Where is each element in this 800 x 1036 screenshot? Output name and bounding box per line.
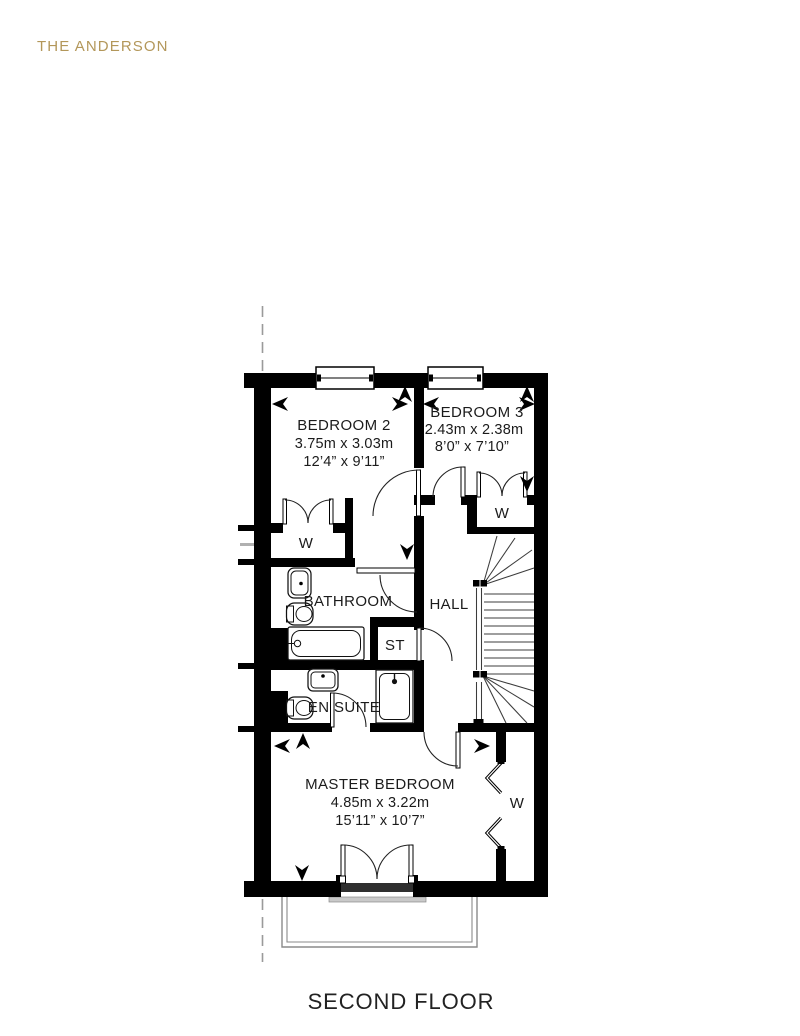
door-store: [417, 628, 452, 661]
wardrobe-doors-bedroom3: [477, 472, 527, 497]
room-label-hall: HALL: [429, 596, 468, 613]
stair-treads: [484, 594, 534, 674]
window-bedroom3: [428, 367, 483, 389]
arrow-down-master: [295, 865, 309, 881]
room-dims-metric-master-bedroom: 4.85m x 3.22m: [331, 795, 430, 811]
arrow-up-bedroom3: [520, 386, 534, 402]
door-bedroom2: [373, 470, 421, 516]
stair-winders-top: [483, 536, 534, 585]
threshold: [329, 897, 426, 902]
wardrobe-label-bedroom2: W: [299, 535, 314, 552]
room-dims-metric-bedroom3: 2.43m x 2.38m: [425, 422, 524, 438]
balcony-outline: [282, 897, 477, 947]
floorplan-page: THE ANDERSON BEDROOM 2 3.75m x 3.03m 12’…: [0, 0, 800, 1036]
arrow-down-bedroom2: [400, 544, 414, 560]
room-dims-metric-bedroom2: 3.75m x 3.03m: [295, 436, 394, 452]
door-bedroom3: [433, 467, 465, 497]
bathtub: [288, 627, 364, 660]
plan-title: THE ANDERSON: [37, 38, 169, 55]
room-dims-imperial-master-bedroom: 15’11” x 10’7”: [335, 813, 425, 829]
room-label-store: ST: [385, 637, 405, 654]
arrow-right-master: [474, 739, 490, 753]
floorplan-drawing: THE ANDERSON BEDROOM 2 3.75m x 3.03m 12’…: [0, 0, 800, 1036]
arrow-left-bedroom2: [272, 397, 288, 411]
bifold-doors-master-wardrobe: [487, 759, 505, 851]
arrow-up-master: [296, 733, 310, 749]
ensuite-basin: [308, 669, 338, 691]
french-doors: [340, 845, 415, 892]
room-dims-imperial-bedroom3: 8’0” x 7’10”: [435, 439, 509, 455]
floor-title: SECOND FLOOR: [308, 989, 495, 1014]
room-dims-imperial-bedroom2: 12’4” x 9’11”: [303, 454, 384, 470]
shower: [376, 670, 413, 723]
wardrobe-doors-bedroom2: [283, 499, 333, 524]
arrow-left-master: [274, 739, 290, 753]
room-label-bedroom3: BEDROOM 3: [430, 404, 524, 421]
room-label-master-bedroom: MASTER BEDROOM: [305, 776, 455, 793]
arrow-up-bedroom2: [398, 386, 412, 402]
room-label-bathroom: BATHROOM: [304, 593, 393, 610]
door-master-bedroom: [424, 732, 460, 768]
room-label-ensuite: EN SUITE: [308, 699, 380, 716]
room-label-bedroom2: BEDROOM 2: [297, 417, 391, 434]
window-bedroom2: [316, 367, 374, 389]
stair-winders-bottom: [483, 676, 534, 723]
wardrobe-label-master: W: [510, 795, 525, 812]
staircase: [473, 536, 534, 726]
wardrobe-label-bedroom3: W: [495, 505, 510, 522]
